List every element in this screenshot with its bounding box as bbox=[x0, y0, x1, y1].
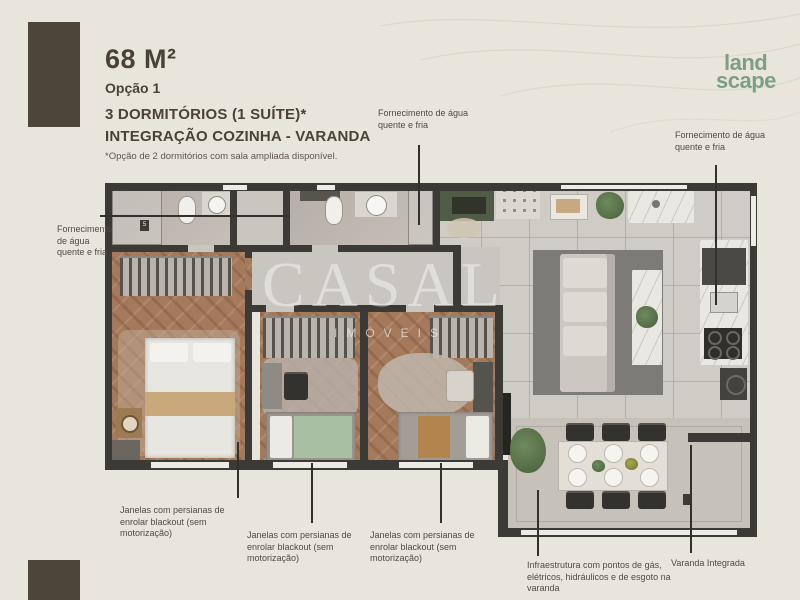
plate-6 bbox=[640, 468, 659, 487]
table-plant-2 bbox=[625, 458, 638, 470]
window-bedroom2 bbox=[272, 461, 348, 469]
kitchen-board-inner bbox=[556, 199, 580, 213]
label-window-blackout-3: Janelas com persianas de enrolar blackou… bbox=[370, 530, 482, 565]
suite-lamp bbox=[121, 415, 139, 433]
dining-chair-bottom-3 bbox=[638, 491, 666, 509]
fridge bbox=[702, 248, 746, 285]
label-window-blackout-1: Janelas com persianas de enrolar blackou… bbox=[120, 505, 232, 540]
plate-4 bbox=[568, 468, 587, 487]
sofa-cushion-2 bbox=[563, 292, 607, 322]
suite-shower bbox=[112, 190, 162, 245]
suite-pillow-right bbox=[193, 343, 231, 362]
green-cabinet-desk bbox=[452, 197, 486, 214]
accent-block-bottom bbox=[28, 560, 80, 600]
kitchen-backsplash-tiles bbox=[496, 191, 540, 219]
washer-door bbox=[726, 375, 746, 395]
option-label: Opção 1 bbox=[105, 80, 160, 96]
burner-1 bbox=[708, 331, 722, 345]
wall-varanda-left bbox=[498, 460, 508, 537]
window-varanda bbox=[520, 529, 738, 536]
kitchen-plant bbox=[596, 192, 624, 219]
suite-basin bbox=[208, 196, 226, 214]
leader-varanda bbox=[690, 445, 692, 553]
plate-3 bbox=[640, 444, 659, 463]
burner-3 bbox=[708, 346, 722, 360]
window-kitchen-top bbox=[560, 184, 688, 190]
dining-chair-bottom-2 bbox=[602, 491, 630, 509]
wall-bedroom3-right bbox=[495, 312, 503, 460]
closet-corridor-floor bbox=[237, 190, 283, 247]
landscape-logo: land scape bbox=[716, 54, 776, 91]
bedroom3-desk bbox=[473, 362, 493, 412]
leader-window-2 bbox=[311, 463, 313, 523]
bathroom2-basin bbox=[366, 195, 387, 216]
burner-2 bbox=[726, 331, 740, 345]
wall-bathroom2-right bbox=[433, 191, 440, 252]
window-suitebath-top bbox=[222, 184, 248, 191]
wall-suitebath-right bbox=[230, 191, 237, 252]
bedroom2-chair bbox=[284, 372, 308, 400]
burner-4 bbox=[726, 346, 740, 360]
leader-window-1 bbox=[237, 442, 239, 498]
label-water-supply-top: Fornecimento de água quente e fria bbox=[378, 108, 470, 131]
bedroom3-chair bbox=[446, 370, 474, 402]
title-line-2: INTEGRAÇÃO COZINHA - VARANDA bbox=[105, 128, 371, 145]
watermark-subtitle: IMÓVEIS bbox=[334, 326, 447, 340]
floor-plan-sheet: 68 M² Opção 1 3 DORMITÓRIOS (1 SUÍTE)* I… bbox=[0, 0, 800, 600]
sofa-cushion-1 bbox=[563, 258, 607, 288]
window-bathroom2-top bbox=[316, 184, 336, 191]
wall-bathroom2-left bbox=[283, 191, 290, 247]
bedroom2-desk bbox=[262, 363, 282, 409]
leader-water-right bbox=[715, 165, 717, 305]
footnote: *Opção de 2 dormitórios com sala ampliad… bbox=[105, 151, 337, 162]
bedroom3-pillow bbox=[466, 416, 489, 458]
bathroom2-toilet bbox=[325, 196, 343, 225]
sofa-cushion-3 bbox=[563, 326, 607, 356]
bedroom3-throw bbox=[418, 416, 450, 458]
suite-toilet bbox=[178, 196, 196, 224]
wall-kitchen-varanda bbox=[688, 433, 750, 442]
label-varanda-infra: Infraestrutura com pontos de gás, elétri… bbox=[527, 560, 677, 595]
leader-water-left bbox=[100, 215, 290, 217]
suite-pillow-left bbox=[150, 343, 188, 362]
wall-tag-suite-bath: 5 bbox=[140, 220, 149, 231]
window-suite bbox=[150, 461, 230, 469]
watermark-name: CASAL bbox=[262, 248, 507, 322]
window-kitchen-right bbox=[750, 195, 757, 247]
table-plant-1 bbox=[592, 460, 605, 472]
kitchen-faucet bbox=[652, 200, 660, 208]
coffee-table-plant bbox=[636, 306, 658, 328]
logo-line-2: scape bbox=[716, 72, 776, 90]
leader-window-3 bbox=[440, 463, 442, 523]
dining-chair-top-1 bbox=[566, 423, 594, 441]
kitchen-counter-sink bbox=[628, 191, 694, 223]
label-water-supply-left: Fornecimento de água quente e fria bbox=[57, 224, 115, 259]
plate-2 bbox=[604, 444, 623, 463]
window-bedroom3 bbox=[398, 461, 474, 469]
plate-1 bbox=[568, 444, 587, 463]
bedroom2-pillow bbox=[270, 416, 292, 458]
label-window-blackout-2: Janelas com persianas de enrolar blackou… bbox=[247, 530, 359, 565]
title-line-1: 3 DORMITÓRIOS (1 SUÍTE)* bbox=[105, 106, 307, 123]
dining-chair-bottom-1 bbox=[566, 491, 594, 509]
accent-block-top bbox=[28, 22, 80, 127]
bedroom2-duvet-green bbox=[294, 416, 352, 458]
leader-water-top bbox=[418, 145, 420, 225]
varanda-plant-tree bbox=[510, 428, 546, 473]
dining-chair-top-3 bbox=[638, 423, 666, 441]
label-varanda-integrada: Varanda Integrada bbox=[671, 558, 781, 570]
door-suite-bath bbox=[188, 245, 214, 252]
entry-rug bbox=[447, 218, 481, 238]
door-suite bbox=[245, 258, 252, 290]
plate-5 bbox=[604, 468, 623, 487]
suite-wardrobe bbox=[120, 256, 232, 296]
dining-chair-top-2 bbox=[602, 423, 630, 441]
suite-bed-throw bbox=[145, 392, 235, 416]
suite-bench bbox=[112, 440, 140, 460]
bathroom2-shower bbox=[408, 190, 433, 245]
area-title: 68 M² bbox=[105, 44, 177, 75]
label-water-supply-right: Fornecimento de água quente e fria bbox=[675, 130, 767, 153]
leader-infra bbox=[537, 490, 539, 556]
